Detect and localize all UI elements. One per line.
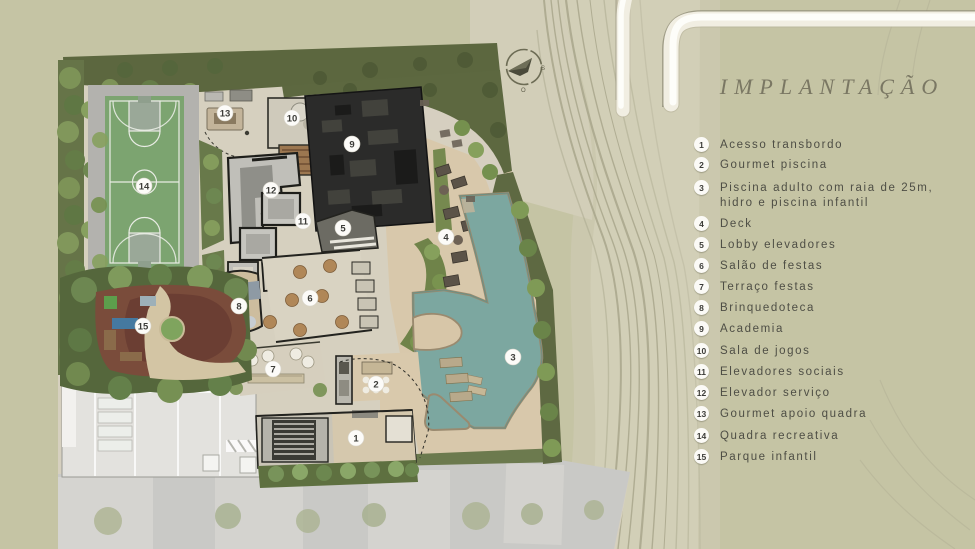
svg-text:14: 14 — [139, 182, 150, 193]
svg-text:6: 6 — [307, 294, 312, 305]
svg-text:4: 4 — [443, 233, 449, 244]
svg-text:11: 11 — [298, 217, 309, 228]
svg-text:3: 3 — [510, 353, 515, 364]
svg-text:13: 13 — [220, 109, 231, 120]
svg-text:S: S — [541, 66, 545, 72]
svg-text:2: 2 — [373, 380, 378, 391]
svg-text:10: 10 — [287, 114, 298, 125]
svg-text:8: 8 — [236, 302, 241, 313]
svg-text:1: 1 — [353, 434, 359, 445]
svg-text:O: O — [521, 88, 526, 94]
svg-text:12: 12 — [266, 186, 277, 197]
svg-text:9: 9 — [349, 140, 354, 151]
svg-text:7: 7 — [270, 365, 275, 376]
svg-text:5: 5 — [340, 224, 346, 235]
svg-text:15: 15 — [138, 322, 149, 333]
